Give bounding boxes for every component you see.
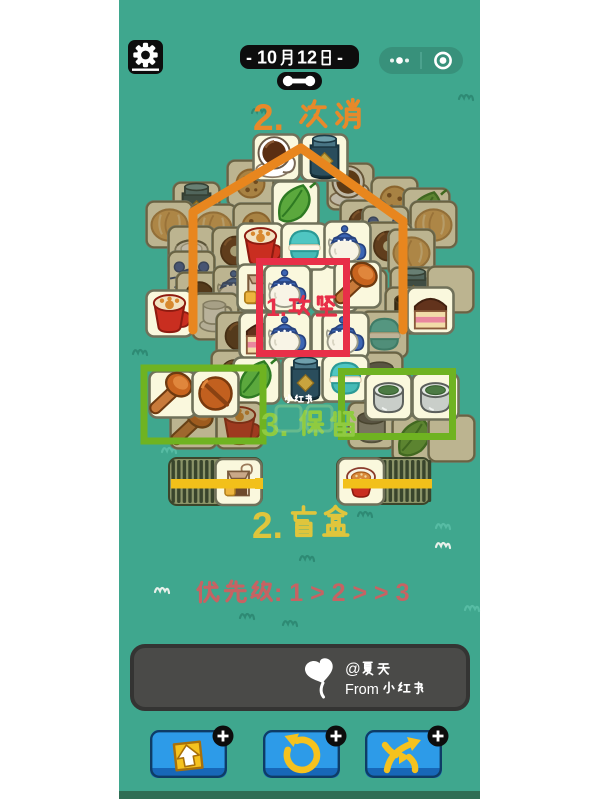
svg-text:1.: 1. <box>266 294 287 322</box>
svg-text:-: - <box>337 48 343 68</box>
svg-text:2.: 2. <box>253 97 284 138</box>
svg-text:12: 12 <box>297 48 317 68</box>
svg-text:From: From <box>345 682 379 698</box>
svg-text:- 10: - 10 <box>246 48 277 68</box>
svg-text:2.: 2. <box>252 505 283 546</box>
svg-text:: 1 > 2 > > 3: : 1 > 2 > > 3 <box>274 579 410 607</box>
svg-text:@: @ <box>345 661 361 678</box>
